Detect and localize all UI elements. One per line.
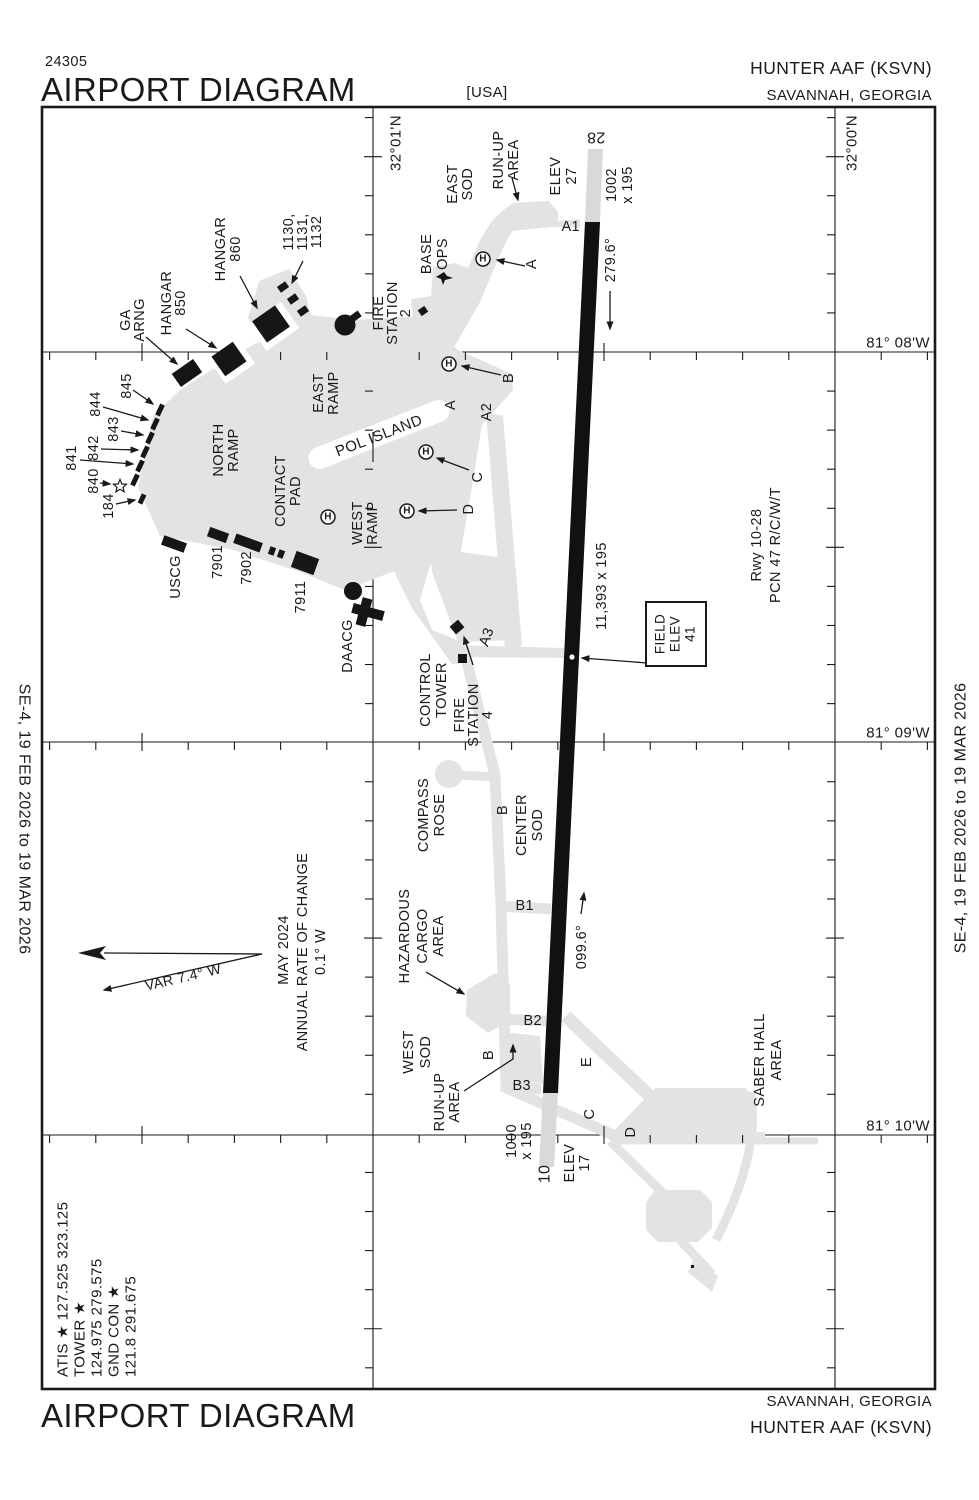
taxiway-b-south: B	[481, 1050, 497, 1060]
east-sod-2: SOD	[460, 168, 476, 201]
airport-diagram: 24305 AIRPORT DIAGRAM [USA] HUNTER AAF (…	[0, 0, 979, 1500]
west-sod-1: WEST	[401, 1030, 417, 1074]
arrow-ga-arng	[146, 337, 177, 364]
compass-rose-2: ROSE	[432, 794, 448, 837]
freq-gnd-values: 121.8 291.675	[123, 1276, 140, 1377]
compass-rose-pad	[435, 760, 463, 788]
arrow-184	[116, 500, 135, 504]
taxiway-a-mid: A	[443, 400, 459, 410]
taxiway-d-mid: D	[461, 504, 477, 515]
base-ops-2: OPS	[435, 238, 451, 270]
east-ramp-1: EAST	[311, 373, 327, 412]
arrow-field-elev	[582, 658, 647, 663]
rwy-info-2: PCN 47 R/C/W/T	[768, 487, 784, 603]
bldg-184: 184	[101, 493, 117, 518]
rwy-28-heading: 279.6°	[603, 238, 619, 282]
runup-south-1: RUN-UP	[432, 1073, 448, 1132]
arrow-heading-099	[581, 893, 584, 914]
center-sod-2: SOD	[530, 809, 546, 842]
airport-name-footer: HUNTER AAF (KSVN)	[750, 1417, 932, 1437]
lat-label-3201: 32°01'N	[388, 115, 405, 171]
runup-south-2: AREA	[447, 1081, 463, 1122]
country-tag: [USA]	[466, 84, 507, 101]
bldg-7901: 7901	[210, 545, 226, 579]
rwy-10-heading: 099.6°	[574, 925, 590, 969]
east-ramp-2: RAMP	[326, 371, 342, 415]
rwy-info-1: Rwy 10-28	[749, 509, 765, 582]
arrow-hazardous	[426, 972, 464, 994]
lat-label-3200: 32°00'N	[844, 115, 861, 171]
hazardous-1: HAZARDOUS	[397, 889, 413, 984]
control-tower-2: TOWER	[434, 662, 450, 718]
taxiway-a2: A2	[479, 403, 495, 422]
rwy-28-elev-1: ELEV	[548, 157, 564, 196]
hazardous-2: CARGO	[415, 908, 431, 963]
beacon-star	[114, 480, 127, 492]
var-rate-2: 0.1° W	[313, 929, 329, 975]
bldg-842: 842	[86, 435, 102, 460]
freq-tower: TOWER ★	[72, 1301, 89, 1377]
chart-number: 24305	[45, 54, 87, 70]
fire-station4-3: 4	[480, 711, 496, 719]
taxiway-a-north: A	[524, 259, 540, 269]
field-elev-2: ELEV	[668, 616, 683, 652]
svg-text:H: H	[479, 254, 487, 265]
lon-label-8108: 81° 08'W	[866, 335, 930, 352]
north-ramp-2: RAMP	[226, 428, 242, 472]
lon-label-8109: 81° 09'W	[866, 725, 930, 742]
arrow-843	[121, 431, 143, 435]
hazardous-3: AREA	[431, 915, 447, 956]
taxiway-b-north: B	[501, 373, 517, 383]
var-date: MAY 2024	[276, 915, 292, 985]
a3-junction	[430, 548, 516, 642]
arrow-hangar-850	[186, 329, 216, 348]
bldg-845: 845	[119, 373, 135, 398]
fire-station2-3: 2	[398, 309, 414, 317]
margin-left-date: SE-4, 19 FEB 2026 to 19 MAR 2026	[16, 684, 33, 955]
svg-text:H: H	[403, 506, 411, 517]
compass-rose-stem	[460, 775, 497, 777]
base-ops-1: BASE	[419, 234, 435, 274]
rwy-10-number: 10	[537, 1165, 554, 1184]
margin-right-date: SE-4, 19 FEB 2026 to 19 MAR 2026	[953, 683, 970, 954]
arrow-845	[133, 390, 153, 404]
field-elev-1: FIELD	[653, 614, 668, 654]
bldg-840: 840	[86, 468, 102, 493]
freq-gnd-con: GND CON ★	[106, 1285, 123, 1377]
contact-pad-2: PAD	[288, 476, 304, 506]
bldg-daacg: DAACG	[340, 619, 356, 673]
helipad-c: H	[419, 445, 433, 459]
hangar-860-1: HANGAR	[213, 217, 229, 281]
arrow-1130	[292, 261, 303, 283]
control-tower-shape	[458, 654, 467, 663]
bldg-844: 844	[88, 391, 104, 416]
rwy-28-overrun-1: 1002	[604, 168, 620, 202]
se-diagonal-taxiway	[610, 1141, 668, 1198]
control-tower-1: CONTROL	[418, 653, 434, 727]
arrow-taxiway-a	[497, 260, 525, 266]
svg-text:H: H	[422, 447, 430, 458]
helipad-b: H	[442, 357, 456, 371]
rwy-28-overrun-2: x 195	[620, 166, 636, 203]
taxiway-b-mid: B	[495, 805, 511, 815]
page-title-footer: AIRPORT DIAGRAM	[41, 1397, 356, 1434]
field-elev-point	[569, 654, 574, 659]
svg-text:H: H	[445, 359, 453, 370]
rwy-dimensions: 11,393 x 195	[594, 542, 610, 630]
svg-text:H: H	[324, 512, 332, 523]
taxiway-a-corridor	[411, 201, 580, 370]
lon-label-8110: 81° 10'W	[866, 1118, 930, 1135]
freq-atis: ATIS ★ 127.525 323.125	[55, 1202, 72, 1377]
ga-arng-2: ARNG	[132, 298, 148, 342]
west-ramp-1: WEST	[350, 501, 366, 545]
city-footer: SAVANNAH, GEORGIA	[767, 1393, 932, 1410]
taxiway-c-south: C	[582, 1109, 598, 1120]
field-elev-3: 41	[683, 626, 698, 642]
rwy-28-elev-2: 27	[564, 168, 580, 185]
airport-name-header: HUNTER AAF (KSVN)	[750, 58, 932, 78]
contact-pad-1: CONTACT	[273, 455, 289, 527]
north-ramp-1: NORTH	[211, 423, 227, 476]
rwy-10-overrun-1: 1000	[504, 1124, 520, 1158]
bldg-7902: 7902	[239, 551, 255, 585]
west-ramp-2: RAMP	[365, 501, 381, 545]
arrow-842	[101, 449, 138, 450]
arrow-hangar-860	[240, 276, 257, 308]
hangar-850-2: 850	[173, 290, 189, 315]
center-sod-1: CENTER	[514, 794, 530, 856]
saber-hall-2: AREA	[769, 1039, 785, 1080]
saber-hall-1: SABER HALL	[752, 1013, 768, 1106]
taxiway-b3: B3	[512, 1078, 531, 1094]
rwy-10-elev-1: ELEV	[562, 1144, 578, 1183]
bldg-841: 841	[64, 445, 80, 470]
se-octagon-pad	[646, 1190, 712, 1242]
taxiway-e: E	[579, 1057, 595, 1067]
freq-tower-values: 124.975 279.575	[89, 1258, 106, 1377]
rwy-10-overrun-2: x 195	[519, 1122, 535, 1159]
rwy-28-number: 28	[587, 129, 606, 146]
helipad-a: H	[476, 252, 490, 266]
taxiway-a1: A1	[561, 219, 580, 235]
var-label: VAR 7.4° W	[143, 960, 223, 993]
taxiway-b1: B1	[515, 898, 534, 914]
runup-north-1: RUN-UP	[491, 131, 507, 190]
runway-28-overrun	[585, 149, 603, 222]
bldg-843: 843	[106, 416, 122, 441]
city-header: SAVANNAH, GEORGIA	[767, 87, 932, 104]
runup-pad-south	[502, 1032, 543, 1083]
compass-rose-1: COMPASS	[416, 778, 432, 852]
rwy-10-elev-2: 17	[577, 1155, 593, 1172]
taxiway-d-south: D	[623, 1127, 639, 1138]
helipad-d: H	[400, 504, 414, 518]
bldg-1130-3: 1132	[309, 216, 325, 249]
taxiway-b2: B2	[523, 1013, 542, 1029]
bldg-7911: 7911	[293, 581, 309, 614]
runup-north-2: AREA	[506, 139, 522, 180]
west-sod-2: SOD	[418, 1036, 434, 1069]
hangar-860-2: 860	[228, 236, 244, 261]
helipad-contact-pad: H	[321, 510, 335, 524]
bldg-uscg: USCG	[168, 555, 184, 599]
east-sod-1: EAST	[445, 164, 461, 203]
bldg-daacg-shape	[344, 582, 362, 600]
var-rate-1: ANNUAL RATE OF CHANGE	[295, 853, 311, 1052]
page-title: AIRPORT DIAGRAM	[41, 71, 356, 108]
taxiway-c-mid: C	[470, 472, 486, 483]
